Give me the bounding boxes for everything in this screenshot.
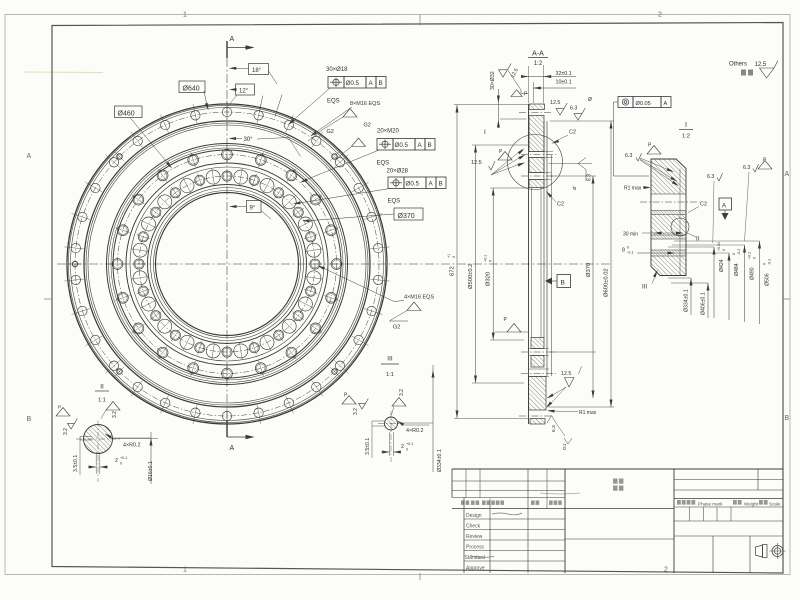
svg-text:Ø: Ø [572,186,577,190]
svg-text:8: 8 [622,248,625,254]
svg-text:3.2: 3.2 [112,411,118,418]
svg-text:6.3: 6.3 [743,165,750,171]
svg-text:30×Ø32: 30×Ø32 [490,71,496,90]
svg-text:12°: 12° [239,89,249,95]
svg-text:2: 2 [401,444,404,450]
svg-text:+0.1: +0.1 [484,255,488,263]
svg-text:III: III [387,356,393,363]
svg-text:Standard: Standard [465,555,486,561]
svg-text:A: A [664,101,668,107]
svg-text:EQS: EQS [327,99,340,105]
svg-text:A: A [429,181,434,188]
svg-text:A: A [369,80,374,87]
svg-text:EQS: EQS [388,199,401,205]
svg-text:8×M16 EQS: 8×M16 EQS [350,101,380,107]
svg-text:Design: Design [466,513,482,519]
svg-text:Ø506: Ø506 [765,273,771,286]
svg-text:I: I [685,122,687,129]
svg-text:B: B [27,416,32,423]
svg-text:+0.1: +0.1 [120,456,127,460]
svg-text:4×R0.2: 4×R0.2 [406,428,424,434]
svg-text:P: P [504,317,508,323]
svg-text:A: A [418,142,423,149]
svg-text:3.2: 3.2 [63,428,69,435]
svg-text:Review: Review [466,534,483,540]
svg-text:1:2: 1:2 [534,61,543,67]
svg-text:Ø370: Ø370 [398,213,415,220]
svg-text:1:2: 1:2 [682,134,690,140]
svg-text:C2: C2 [569,130,576,136]
svg-text:A: A [785,171,790,178]
svg-text:30 min: 30 min [623,232,638,238]
svg-text:-0.2: -0.2 [768,259,772,265]
svg-text:R1 max: R1 max [579,410,597,416]
svg-text:Others: Others [729,62,747,68]
svg-text:Ø484: Ø484 [734,263,740,276]
svg-text:1: 1 [183,567,187,574]
svg-text:A: A [230,36,235,43]
svg-text:0: 0 [722,249,726,251]
svg-text:B: B [561,280,565,287]
svg-text:672: 672 [450,266,456,276]
svg-text:Ø500±0.2: Ø500±0.2 [468,264,474,289]
svg-text:0: 0 [120,462,122,466]
svg-text:3.2: 3.2 [353,408,359,415]
svg-text:2: 2 [658,12,662,19]
svg-text:G2: G2 [327,129,334,135]
svg-text:B: B [428,142,432,149]
svg-text:Phase mark: Phase mark [698,502,723,507]
svg-text:2: 2 [664,567,668,574]
svg-text:18°: 18° [252,68,262,74]
svg-text:Ø334±0.1: Ø334±0.1 [437,449,443,472]
svg-text:P: P [524,92,528,98]
svg-text:20×Ø28: 20×Ø28 [387,169,409,175]
svg-text:B: B [379,80,383,87]
svg-text:A-A: A-A [532,51,544,58]
svg-text:+0.2: +0.2 [748,252,752,259]
svg-text:0: 0 [732,253,736,255]
svg-text:0: 0 [763,263,767,265]
svg-text:6.3: 6.3 [625,153,632,159]
svg-text:-0.1: -0.1 [627,251,634,255]
svg-text:12.5: 12.5 [561,371,571,377]
svg-text:Ø640: Ø640 [183,86,200,93]
svg-text:Approve: Approve [466,566,485,572]
svg-text:I: I [484,129,486,136]
svg-text:1: 1 [183,12,187,19]
svg-text:0: 0 [753,257,757,259]
svg-text:12.5: 12.5 [510,67,520,79]
svg-text:A: A [27,153,32,160]
svg-text:C2: C2 [700,202,707,208]
svg-text:3.2: 3.2 [399,389,405,396]
svg-text:Ø0.5: Ø0.5 [395,142,409,149]
svg-text:Ø460: Ø460 [118,111,135,118]
svg-text:6.3: 6.3 [551,425,557,432]
svg-text:II: II [100,384,104,391]
svg-text:3.5±0.1: 3.5±0.1 [365,438,371,455]
svg-text:32±0.1: 32±0.1 [556,71,572,77]
svg-text:II: II [696,237,700,243]
svg-text:+1: +1 [447,254,451,258]
svg-text:12.5: 12.5 [471,160,482,166]
svg-text:2: 2 [115,458,118,464]
svg-text:Ø406±0.1: Ø406±0.1 [701,292,707,315]
svg-text:G2: G2 [393,325,400,331]
svg-text:B: B [439,181,443,188]
svg-text:30°: 30° [244,137,254,143]
svg-text:-0.2: -0.2 [737,249,741,255]
svg-text:+0.1: +0.1 [406,442,413,446]
svg-text:6.3: 6.3 [587,174,593,181]
svg-text:B: B [785,415,790,422]
svg-text:9°: 9° [250,206,256,212]
svg-text:Ø424: Ø424 [719,259,725,272]
svg-text:Process: Process [466,545,485,551]
svg-text:0: 0 [627,246,629,250]
svg-text:EQS: EQS [377,161,390,167]
svg-text:Ø0.5: Ø0.5 [346,80,360,87]
svg-text:P: P [58,405,61,411]
svg-text:0: 0 [489,260,493,262]
svg-text:G1: G1 [562,443,568,450]
svg-text:Ø320: Ø320 [486,272,492,286]
svg-text:P: P [648,143,652,149]
svg-text:A: A [722,203,727,210]
svg-text:12.5: 12.5 [755,62,767,68]
svg-text:Ø334±0.1: Ø334±0.1 [684,289,690,312]
svg-text:1:1: 1:1 [98,398,106,404]
svg-text:Ø0.5: Ø0.5 [406,181,420,188]
svg-text:3.5±0.1: 3.5±0.1 [73,455,79,472]
svg-text:Ø: Ø [588,97,592,103]
svg-text:1:1: 1:1 [386,372,394,378]
svg-text:+0.04: +0.04 [717,242,721,251]
svg-text:0: 0 [406,448,408,452]
svg-text:Ø370: Ø370 [586,263,592,277]
svg-text:4×R0.2: 4×R0.2 [123,443,141,449]
svg-text:4×M16 EQS: 4×M16 EQS [404,295,434,301]
svg-text:6.3: 6.3 [570,106,577,112]
svg-text:20×M20: 20×M20 [377,129,400,135]
svg-text:G2: G2 [364,123,371,129]
svg-text:III: III [642,285,647,291]
svg-text:R1 max: R1 max [624,186,642,192]
svg-text:Ø490: Ø490 [750,267,756,280]
svg-text:Weight: Weight [744,502,759,507]
svg-text:A: A [230,445,235,452]
svg-text:Ø0.05: Ø0.05 [636,101,651,107]
svg-text:0: 0 [452,256,456,258]
svg-text:Ø600±0.02: Ø600±0.02 [604,268,610,297]
svg-text:Scale: Scale [769,502,781,507]
svg-text:30×Ø18: 30×Ø18 [326,67,348,73]
svg-text:C2: C2 [557,202,564,208]
svg-text:10±0.1: 10±0.1 [556,80,572,86]
svg-text:6.3: 6.3 [707,174,714,180]
svg-text:Check: Check [466,524,481,530]
svg-text:12.5: 12.5 [550,100,560,106]
svg-text:P: P [499,149,503,155]
